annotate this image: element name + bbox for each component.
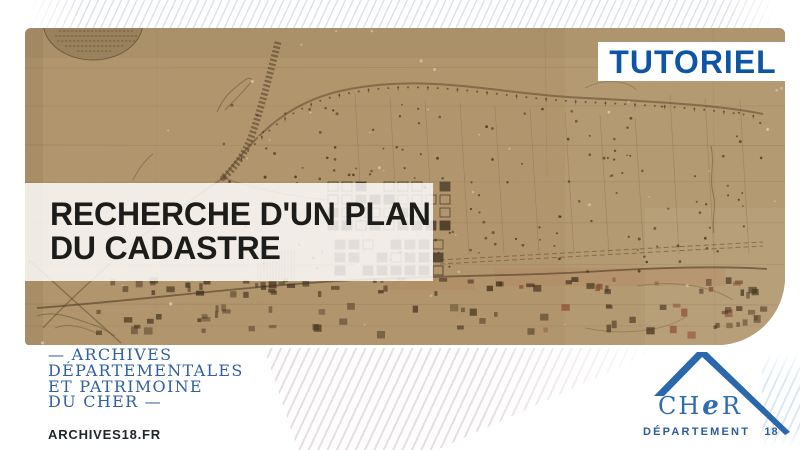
logo-letter-e: e [702, 392, 721, 421]
logo-caption-text: DÉPARTEMENT [643, 426, 750, 438]
org-name-line4: DU CHER — [48, 394, 244, 410]
tutoriel-badge-label: TUTORIEL [609, 46, 776, 78]
top-hatch-decoration [28, 0, 776, 29]
logo-wordmark: CH e R [658, 392, 742, 421]
footer-hatch-decoration [252, 348, 672, 450]
tutoriel-badge: TUTORIEL [598, 42, 788, 81]
logo-letters-ch: CH [658, 393, 701, 419]
page-title-line1: RECHERCHE D'UN PLAN [50, 197, 433, 231]
logo-caption: DÉPARTEMENT 18 [643, 426, 779, 438]
page-title-line2: DU CADASTRE [50, 231, 433, 265]
org-name: — ARCHIVES DÉPARTEMENTALES ET PATRIMOINE… [48, 347, 244, 410]
tutorial-cover: TUTORIEL RECHERCHE D'UN PLAN DU CADASTRE… [0, 0, 800, 450]
logo-letter-r: R [722, 393, 742, 419]
title-band: RECHERCHE D'UN PLAN DU CADASTRE [25, 183, 433, 281]
website-url: ARCHIVES18.FR [48, 427, 161, 442]
cher-department-logo: CH e R DÉPARTEMENT 18 [630, 350, 800, 448]
logo-department-number: 18 [764, 426, 778, 438]
